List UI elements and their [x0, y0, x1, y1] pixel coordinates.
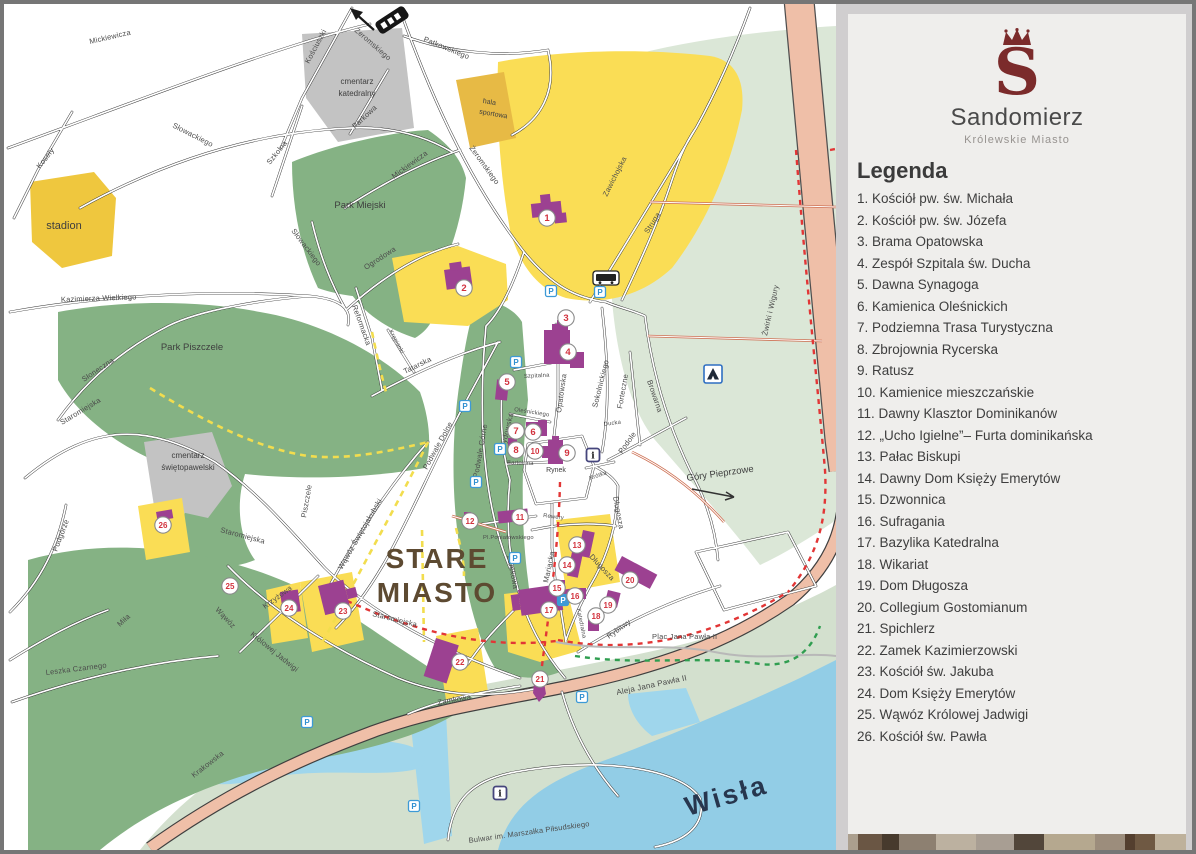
- svg-text:8: 8: [513, 445, 518, 456]
- legend-item: 18. Wikariat: [857, 554, 1182, 576]
- city-map: Mickiewicza Kościuszki Żeromskiego Patko…: [4, 4, 836, 850]
- svg-text:P: P: [513, 358, 519, 367]
- legend-item: 20. Collegium Gostomianum: [857, 597, 1182, 619]
- legend-item: 11. Dawny Klasztor Dominikanów: [857, 403, 1182, 425]
- legend-sidebar: S Sandomierz Królewskie Miasto Legenda 1…: [836, 4, 1192, 850]
- map-marker-21: 21: [532, 671, 548, 687]
- svg-text:P: P: [597, 288, 603, 297]
- map-marker-9: 9: [559, 445, 575, 461]
- map-canvas: Mickiewicza Kościuszki Żeromskiego Patko…: [4, 4, 836, 850]
- stadium-label: stadion: [46, 220, 81, 232]
- legend-item: 23. Kościół św. Jakuba: [857, 661, 1182, 683]
- legend-item: 2. Kościół pw. św. Józefa: [857, 210, 1182, 232]
- map-marker-26: 26: [155, 517, 171, 533]
- camping-icon: [704, 365, 722, 383]
- svg-text:23: 23: [339, 607, 348, 616]
- legend-item: 9. Ratusz: [857, 360, 1182, 382]
- legend-item: 21. Spichlerz: [857, 618, 1182, 640]
- bus-stop-icon: [593, 271, 619, 285]
- logo-letter: S: [994, 46, 1040, 100]
- svg-text:26: 26: [159, 521, 168, 530]
- map-marker-13: 13: [569, 537, 585, 553]
- svg-text:1: 1: [544, 213, 550, 224]
- legend-item: 26. Kościół św. Pawła: [857, 726, 1182, 748]
- svg-text:24: 24: [285, 604, 294, 613]
- legend-item: 13. Pałac Biskupi: [857, 446, 1182, 468]
- svg-text:i: i: [591, 451, 595, 461]
- svg-text:3: 3: [563, 313, 568, 324]
- svg-text:Bartolona: Bartolona: [507, 460, 534, 467]
- map-marker-7: 7: [508, 423, 524, 439]
- map-marker-24: 24: [281, 600, 297, 616]
- map-marker-12: 12: [462, 513, 478, 529]
- svg-text:P: P: [512, 554, 518, 563]
- svg-text:6: 6: [530, 427, 535, 438]
- map-marker-15: 15: [549, 580, 565, 596]
- svg-text:P: P: [579, 693, 585, 702]
- map-marker-4: 4: [560, 344, 576, 360]
- city-subtitle: Królewskie Miasto: [964, 134, 1070, 146]
- legend-item: 19. Dom Długosza: [857, 575, 1182, 597]
- market-square-label: Rynek: [546, 467, 566, 474]
- parking-icon: P: [471, 477, 482, 488]
- svg-text:20: 20: [626, 576, 635, 585]
- legend-item: 25. Wąwóz Królowej Jadwigi: [857, 704, 1182, 726]
- map-marker-20: 20: [622, 572, 638, 588]
- svg-text:12: 12: [466, 517, 475, 526]
- legend-item: 12. „Ucho Igielne”– Furta dominikańska: [857, 425, 1182, 447]
- legend-item: 16. Sufragania: [857, 511, 1182, 533]
- map-marker-16: 16: [567, 588, 583, 604]
- svg-text:11: 11: [516, 513, 525, 522]
- svg-text:13: 13: [573, 541, 582, 550]
- svg-text:17: 17: [545, 606, 554, 615]
- info-icon: i: [494, 787, 507, 800]
- parking-icon: P: [460, 401, 471, 412]
- legend-item: 17. Bazylika Katedralna: [857, 532, 1182, 554]
- svg-text:P: P: [497, 445, 503, 454]
- parking-icon: P: [546, 286, 557, 297]
- legend-panel: S Sandomierz Królewskie Miasto Legenda 1…: [848, 14, 1186, 850]
- map-marker-25: 25: [222, 578, 238, 594]
- city-logo: S Sandomierz Królewskie Miasto: [848, 28, 1186, 146]
- map-marker-10: 10: [527, 443, 543, 459]
- svg-text:P: P: [411, 802, 417, 811]
- svg-text:21: 21: [536, 675, 545, 684]
- legend-item: 8. Zbrojownia Rycerska: [857, 339, 1182, 361]
- svg-text:9: 9: [564, 448, 569, 459]
- legend-item: 24. Dom Księży Emerytów: [857, 683, 1182, 705]
- old-town-label: STARE: [386, 543, 489, 574]
- parking-icon: P: [495, 444, 506, 455]
- legend-item: 22. Zamek Kazimierzowski: [857, 640, 1182, 662]
- parking-icon: P: [577, 692, 588, 703]
- svg-text:15: 15: [553, 584, 562, 593]
- svg-text:4: 4: [565, 347, 571, 358]
- map-marker-14: 14: [559, 557, 575, 573]
- map-marker-8: 8: [508, 442, 524, 458]
- legend-item: 15. Dzwonnica: [857, 489, 1182, 511]
- map-marker-11: 11: [512, 509, 528, 525]
- parking-icon: P: [409, 801, 420, 812]
- svg-text:22: 22: [456, 658, 465, 667]
- svg-text:19: 19: [604, 601, 613, 610]
- svg-text:18: 18: [592, 612, 601, 621]
- map-marker-17: 17: [541, 602, 557, 618]
- legend-item: 6. Kamienica Oleśnickich: [857, 296, 1182, 318]
- map-marker-2: 2: [456, 280, 472, 296]
- svg-text:świętopawelski: świętopawelski: [161, 463, 215, 472]
- svg-text:P: P: [473, 478, 479, 487]
- page-frame: Mickiewicza Kościuszki Żeromskiego Patko…: [0, 0, 1196, 854]
- legend-item: 3. Brama Opatowska: [857, 231, 1182, 253]
- map-marker-22: 22: [452, 654, 468, 670]
- svg-text:5: 5: [504, 377, 510, 388]
- info-icon: i: [587, 449, 600, 462]
- map-marker-23: 23: [335, 603, 351, 619]
- map-marker-1: 1: [539, 210, 555, 226]
- cemetery-katedralny-label: cmentarz: [341, 77, 374, 86]
- svg-text:katedralny: katedralny: [339, 89, 376, 98]
- park-miejski-label: Park Miejski: [334, 200, 385, 211]
- legend-item: 7. Podziemna Trasa Turystyczna: [857, 317, 1182, 339]
- parking-icon: P: [302, 717, 313, 728]
- svg-text:14: 14: [563, 561, 572, 570]
- svg-text:P: P: [560, 596, 566, 605]
- parking-icon: P: [595, 287, 606, 298]
- legend-item: 1. Kościół pw. św. Michała: [857, 188, 1182, 210]
- parking-icon: P: [511, 357, 522, 368]
- svg-text:7: 7: [513, 426, 518, 437]
- park-piszczele-label: Park Piszczele: [161, 342, 223, 353]
- map-marker-6: 6: [525, 424, 541, 440]
- svg-text:10: 10: [531, 447, 540, 456]
- svg-text:P: P: [304, 718, 310, 727]
- legend-item: 10. Kamienice mieszczańskie: [857, 382, 1182, 404]
- svg-text:i: i: [498, 789, 502, 799]
- svg-text:MIASTO: MIASTO: [377, 577, 497, 608]
- legend-item: 14. Dawny Dom Księży Emerytów: [857, 468, 1182, 490]
- map-marker-5: 5: [499, 374, 515, 390]
- poniatowski-square-label: Pl.Poniatowskiego: [483, 535, 534, 541]
- map-marker-19: 19: [600, 597, 616, 613]
- legend-title: Legenda: [857, 158, 1186, 184]
- svg-text:25: 25: [226, 582, 235, 591]
- legend-list: 1. Kościół pw. św. Michała 2. Kościół pw…: [848, 188, 1186, 747]
- legend-item: 4. Zespół Szpitala św. Ducha: [857, 253, 1182, 275]
- parking-icon: P: [510, 553, 521, 564]
- svg-text:P: P: [462, 402, 468, 411]
- svg-text:P: P: [548, 287, 554, 296]
- jp2-square-label: Plac Jana Pawła II: [652, 632, 717, 641]
- svg-text:16: 16: [571, 592, 580, 601]
- city-title: Sandomierz: [950, 104, 1083, 132]
- legend-item: 5. Dawna Synagoga: [857, 274, 1182, 296]
- svg-text:2: 2: [461, 283, 466, 294]
- cemetery-swietopawelski-label: cmentarz: [172, 451, 205, 460]
- map-marker-3: 3: [558, 310, 574, 326]
- color-strip: [848, 834, 1186, 850]
